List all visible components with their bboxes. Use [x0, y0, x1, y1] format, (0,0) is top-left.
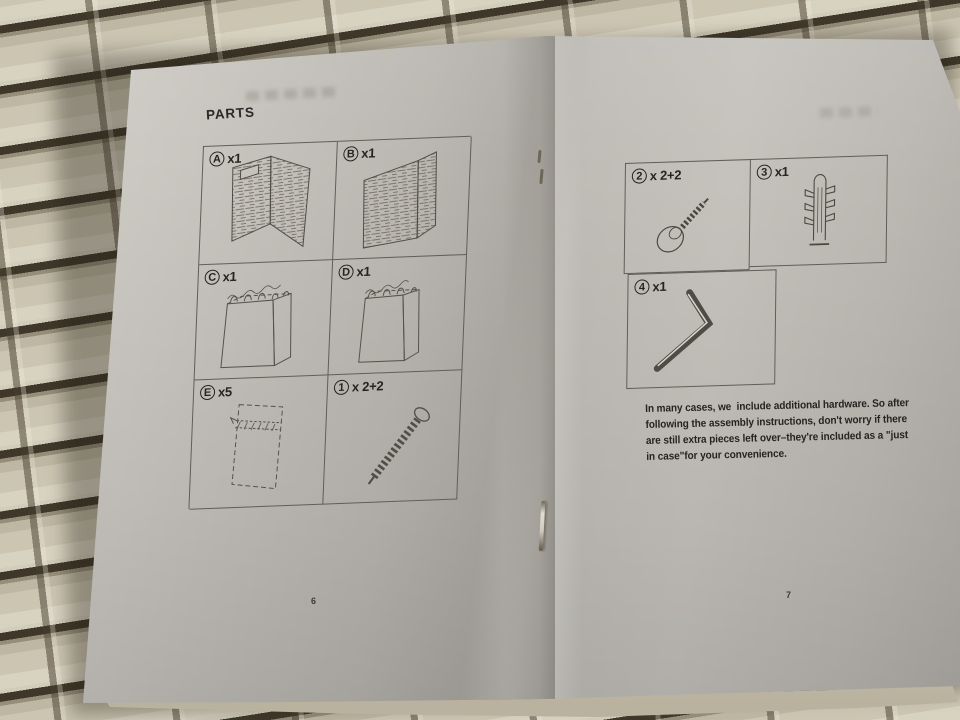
part-1-badge: 1: [334, 380, 350, 396]
part-cell-2: 2 x 2+2: [624, 159, 751, 274]
page-number-right: 7: [786, 590, 791, 600]
part-cell-c: C x1: [195, 260, 334, 380]
center-fold-shadow: [503, 28, 555, 703]
parts-heading: PARTS: [206, 105, 256, 123]
part-d-label: D x1: [338, 264, 370, 280]
right-parts-grid: 2 x 2+2 3 x1: [622, 155, 888, 389]
part-d-badge: D: [338, 264, 354, 280]
part-cell-b: B x1: [333, 137, 472, 260]
part-cell-3: 3 x1: [750, 155, 888, 267]
part-1-label: 1 x 2+2: [334, 378, 384, 395]
part-3-label: 3 x1: [757, 164, 789, 180]
part-2-badge: 2: [632, 168, 647, 183]
part-cell-4: 4 x1: [626, 269, 776, 389]
part-a-label: A x1: [209, 151, 241, 167]
part-e-badge: E: [200, 385, 216, 401]
part-cell-1: 1 x 2+2: [323, 370, 462, 504]
part-4-badge: 4: [634, 279, 649, 294]
bleedthrough-text-right: [820, 106, 878, 118]
part-e-label: E x5: [200, 384, 232, 400]
part-cell-d: D x1: [328, 255, 467, 375]
part-3-badge: 3: [757, 164, 772, 179]
part-b-badge: B: [343, 146, 359, 162]
part-cell-a: A x1: [199, 142, 338, 265]
hardware-note: In many cases, we include additional har…: [645, 395, 930, 465]
part-c-label: C x1: [204, 269, 236, 285]
part-a-badge: A: [209, 151, 225, 167]
part-cell-e: E x5: [189, 375, 328, 509]
page-number-left: 6: [311, 596, 316, 606]
left-parts-grid: A x1 B x1 C x1: [188, 136, 470, 509]
part-b-label: B x1: [343, 145, 375, 161]
center-fold-highlight: [555, 28, 583, 700]
part-4-label: 4 x1: [634, 279, 666, 295]
part-c-badge: C: [204, 269, 220, 285]
part-2-label: 2 x 2+2: [632, 167, 682, 184]
